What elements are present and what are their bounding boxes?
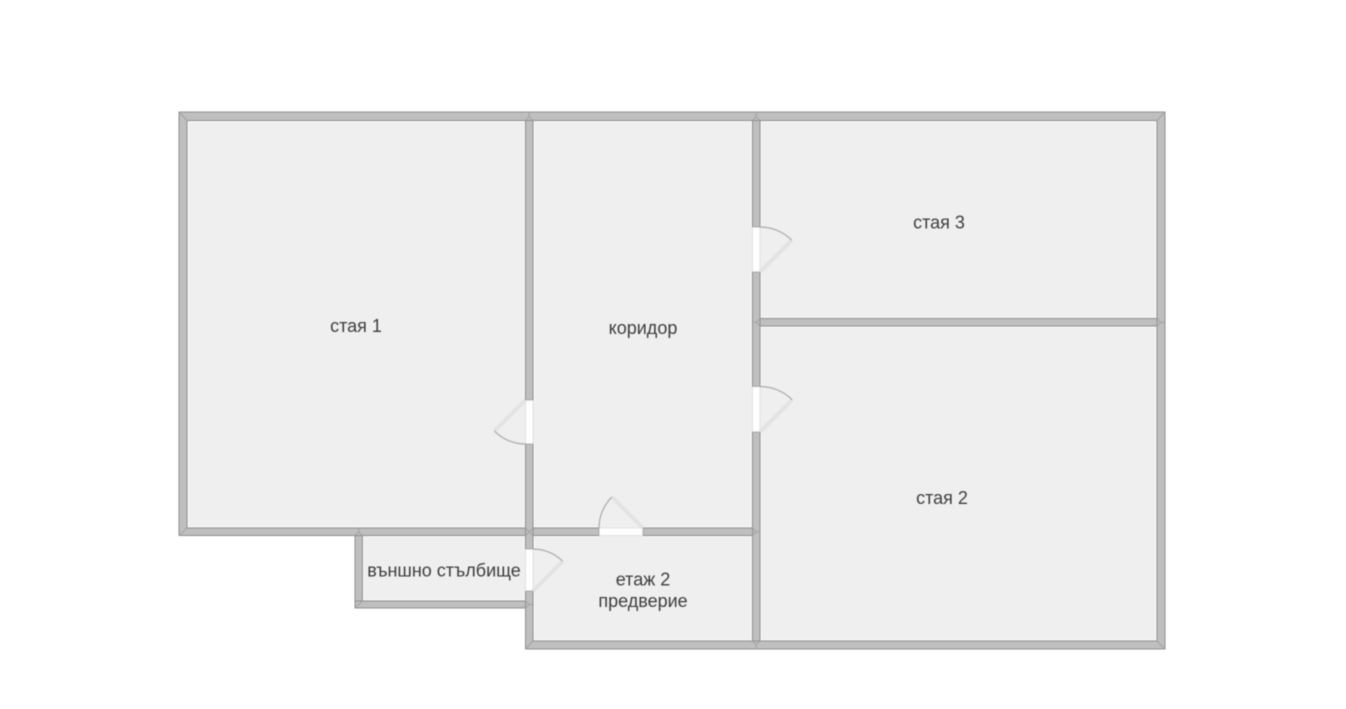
svg-text:стая 1: стая 1 bbox=[330, 316, 382, 336]
svg-text:външно стълбище: външно стълбище bbox=[367, 561, 521, 581]
svg-text:стая 3: стая 3 bbox=[913, 213, 965, 233]
svg-text:етаж 2: етаж 2 bbox=[616, 570, 671, 590]
svg-text:стая 2: стая 2 bbox=[916, 488, 968, 508]
svg-text:коридор: коридор bbox=[609, 318, 678, 338]
svg-text:предверие: предверие bbox=[598, 591, 687, 611]
